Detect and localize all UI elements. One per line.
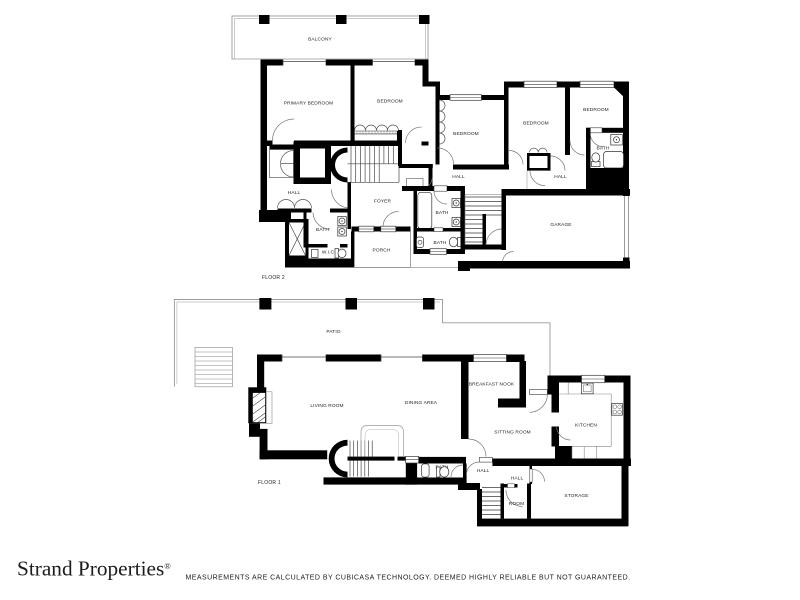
- svg-text:HALL: HALL: [511, 476, 524, 482]
- svg-text:PORCH: PORCH: [373, 248, 391, 254]
- svg-text:FLOOR 2: FLOOR 2: [262, 275, 285, 281]
- svg-text:BATH: BATH: [316, 227, 329, 233]
- svg-text:MEASUREMENTS ARE CALCULATED BY: MEASUREMENTS ARE CALCULATED BY CUBICASA …: [186, 575, 631, 582]
- svg-text:W.I.C: W.I.C: [322, 250, 335, 256]
- svg-text:Strand Properties®: Strand Properties®: [17, 557, 171, 581]
- svg-text:GARAGE: GARAGE: [550, 222, 571, 228]
- svg-text:BEDROOM: BEDROOM: [453, 131, 479, 137]
- svg-text:BATH: BATH: [434, 240, 447, 246]
- svg-text:BEDROOM: BEDROOM: [583, 107, 609, 113]
- svg-text:FOYER: FOYER: [374, 199, 392, 205]
- svg-text:HALL: HALL: [288, 190, 301, 196]
- svg-text:PRIMARY BEDROOM: PRIMARY BEDROOM: [284, 101, 334, 107]
- svg-text:BREAKFAST NOOK: BREAKFAST NOOK: [469, 382, 515, 388]
- svg-text:HALL: HALL: [452, 174, 465, 180]
- svg-text:ROOM: ROOM: [509, 501, 524, 507]
- svg-text:SITTING ROOM: SITTING ROOM: [494, 430, 531, 436]
- svg-text:BATH: BATH: [597, 146, 610, 152]
- svg-text:PATIO: PATIO: [326, 329, 340, 335]
- svg-text:LIVING ROOM: LIVING ROOM: [310, 403, 343, 409]
- svg-text:BATH: BATH: [436, 210, 449, 216]
- svg-text:STORAGE: STORAGE: [564, 493, 588, 499]
- svg-text:BALCONY: BALCONY: [308, 37, 332, 43]
- svg-text:HALL: HALL: [554, 174, 567, 180]
- svg-text:BEDROOM: BEDROOM: [523, 121, 549, 127]
- svg-text:FLOOR 1: FLOOR 1: [258, 480, 281, 486]
- svg-text:HALL: HALL: [477, 468, 490, 474]
- svg-text:DINING AREA: DINING AREA: [405, 400, 438, 406]
- svg-text:KITCHEN: KITCHEN: [575, 423, 597, 429]
- svg-text:BEDROOM: BEDROOM: [377, 99, 403, 105]
